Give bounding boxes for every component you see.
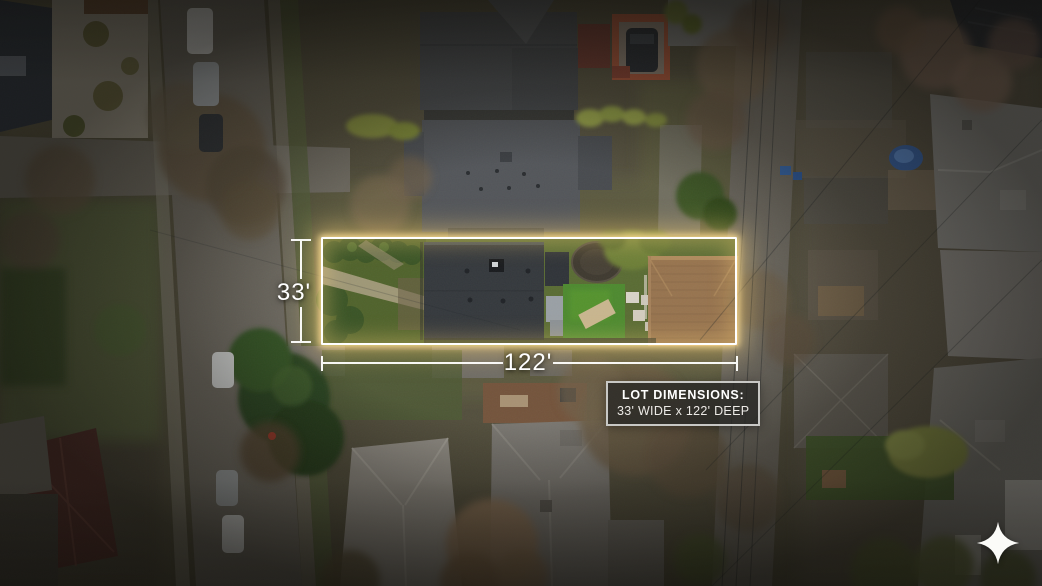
lot-dimensions-box: LOT DIMENSIONS: 33' WIDE x 122' DEEP (606, 381, 760, 426)
lot-dimensions-title: LOT DIMENSIONS: (617, 388, 749, 402)
lot-width-label: 33' (277, 279, 311, 307)
lot-depth-label: 122' (504, 349, 553, 377)
sparkle-icon (976, 521, 1020, 565)
lot-boundary-highlight (321, 237, 737, 345)
lot-dimensions-value: 33' WIDE x 122' DEEP (617, 404, 749, 418)
aerial-lot-view: 33' 122' LOT DIMENSIONS: 33' WIDE x 122'… (0, 0, 1042, 586)
